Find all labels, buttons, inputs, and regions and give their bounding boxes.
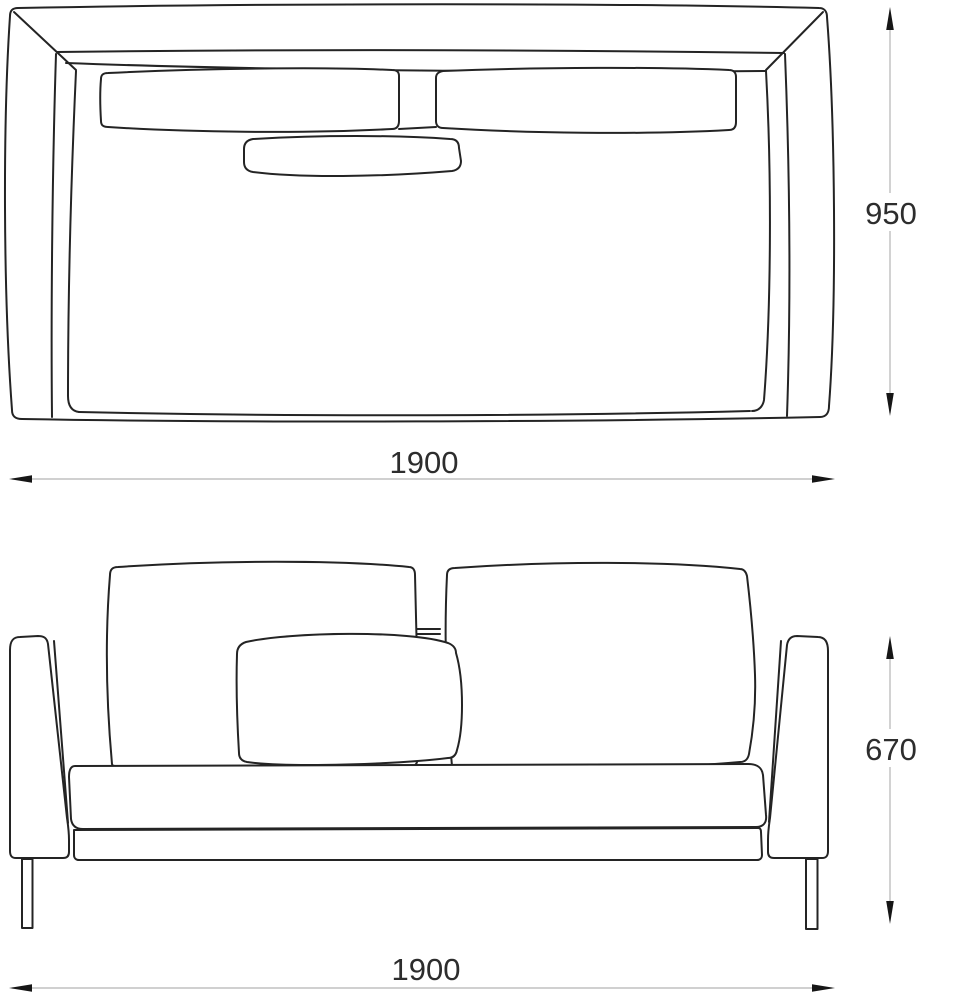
dim-label-front-height: 670	[865, 732, 917, 767]
front-view-base-frame	[74, 828, 762, 860]
top-view-right-arm-inner-line	[752, 71, 770, 411]
front-view	[10, 562, 828, 929]
arrowhead-up-icon	[886, 636, 894, 659]
front-view-right-leg	[806, 859, 818, 929]
arrowhead-left-icon	[9, 475, 32, 483]
top-view	[5, 4, 834, 421]
top-view-left-arm-inner-line	[68, 71, 79, 412]
top-view-right-arm-outer-line	[785, 54, 789, 416]
arrowhead-up-icon	[886, 7, 894, 30]
dim-front-width: 1900	[9, 952, 835, 992]
top-view-corner-seam-right	[766, 12, 823, 70]
sofa-technical-drawing: 950 1900 670 1900	[0, 0, 973, 1000]
front-view-lumbar-cushion	[237, 634, 462, 765]
top-view-corner-seam-left	[14, 12, 76, 70]
front-view-seat-cushion	[69, 764, 766, 829]
front-view-left-leg	[22, 859, 33, 928]
arrowhead-left-icon	[9, 984, 32, 992]
top-view-seat-front-edge	[79, 411, 750, 415]
dim-top-depth: 950	[863, 7, 919, 416]
top-view-back-cushion-left	[100, 68, 399, 132]
front-view-right-arm	[768, 636, 828, 858]
arrowhead-down-icon	[886, 901, 894, 924]
top-view-backrest-inner-edge	[57, 50, 784, 53]
front-view-back-cushion-right	[446, 563, 756, 770]
dim-front-height: 670	[863, 636, 919, 924]
dim-label-top-width: 1900	[390, 445, 459, 480]
top-view-left-arm-outer-line	[52, 54, 56, 417]
top-view-cushion-gap-line	[399, 127, 436, 129]
front-view-left-arm	[10, 636, 69, 858]
arrowhead-right-icon	[812, 984, 835, 992]
arrowhead-right-icon	[812, 475, 835, 483]
sofa-technical-drawing-page: 950 1900 670 1900	[0, 0, 973, 1000]
top-view-lumbar-cushion	[244, 136, 461, 176]
top-view-outer-outline	[5, 4, 834, 421]
dim-label-top-depth: 950	[865, 196, 917, 231]
arrowhead-down-icon	[886, 393, 894, 416]
top-view-back-cushion-right	[436, 68, 736, 133]
dim-top-width: 1900	[9, 445, 835, 483]
dim-label-front-width: 1900	[392, 952, 461, 987]
